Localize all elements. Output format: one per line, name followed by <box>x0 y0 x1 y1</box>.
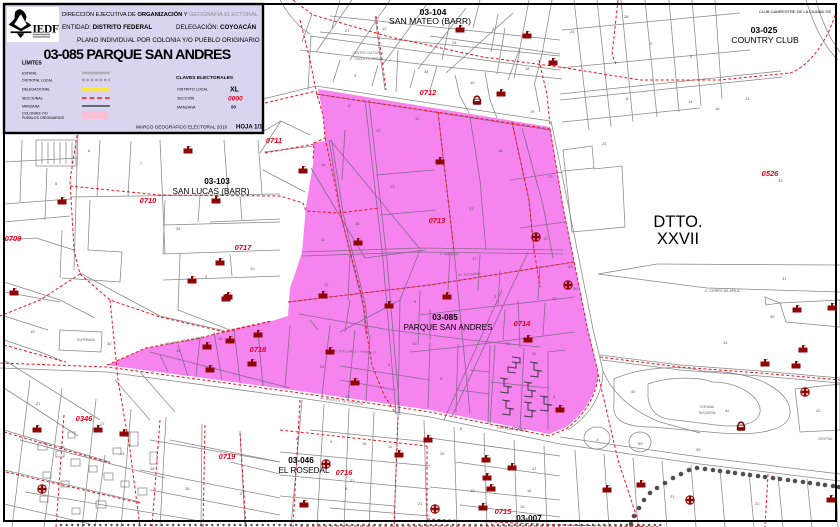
svg-text:03-085 PARQUE SAN ANDRES: 03-085 PARQUE SAN ANDRES <box>44 47 231 63</box>
svg-text:33: 33 <box>778 178 783 183</box>
svg-text:DISTRITO LOCAL: DISTRITO LOCAL <box>177 88 208 92</box>
svg-text:18: 18 <box>525 66 530 71</box>
svg-text:CLAVES ELECTORALES: CLAVES ELECTORALES <box>176 75 234 81</box>
svg-text:DISTRITAL LOCAL: DISTRITAL LOCAL <box>22 79 53 83</box>
svg-text:0715: 0715 <box>495 507 513 516</box>
svg-text:COUNTRY CLUB: COUNTRY CLUB <box>731 35 799 45</box>
svg-text:XL: XL <box>230 87 240 94</box>
svg-text:LÍMITES: LÍMITES <box>22 59 42 67</box>
svg-text:10: 10 <box>250 266 255 271</box>
svg-text:12: 12 <box>376 128 381 133</box>
svg-text:TAXQUEÑA: TAXQUEÑA <box>698 410 716 415</box>
svg-text:0346: 0346 <box>76 414 94 423</box>
svg-text:C. AMERICA: C. AMERICA <box>440 252 459 256</box>
svg-text:COLONIAS Y/O: COLONIAS Y/O <box>22 112 48 116</box>
svg-text:34: 34 <box>424 69 429 74</box>
svg-text:20: 20 <box>568 264 573 269</box>
svg-text:28: 28 <box>624 14 629 19</box>
svg-text:ESTATAL: ESTATAL <box>22 72 37 76</box>
svg-text:10: 10 <box>470 80 475 85</box>
svg-text:17: 17 <box>532 466 537 471</box>
svg-text:0710: 0710 <box>140 196 158 205</box>
svg-text:ENTIDAD: DISTRITO FEDERAL: ENTIDAD: DISTRITO FEDERAL <box>62 24 153 31</box>
svg-text:16: 16 <box>362 441 367 446</box>
svg-text:31: 31 <box>782 276 787 281</box>
svg-text:24: 24 <box>452 40 457 45</box>
svg-text:17: 17 <box>469 206 474 211</box>
svg-text:SORIANA: SORIANA <box>700 405 715 409</box>
svg-text:21: 21 <box>36 401 41 406</box>
svg-text:12: 12 <box>382 26 387 31</box>
svg-text:03-007: 03-007 <box>516 514 542 523</box>
svg-text:03-025: 03-025 <box>751 25 778 35</box>
svg-text:18: 18 <box>150 466 155 471</box>
svg-text:20: 20 <box>440 451 445 456</box>
svg-text:23: 23 <box>570 29 575 34</box>
svg-text:16: 16 <box>176 348 181 353</box>
svg-text:CENTRAL: CENTRAL <box>818 437 833 441</box>
svg-text:10: 10 <box>30 329 35 334</box>
svg-text:16: 16 <box>715 106 720 111</box>
svg-text:14: 14 <box>321 162 326 167</box>
svg-text:22: 22 <box>755 501 760 506</box>
svg-text:CLUB CAMPESTRE DE LA CIUDAD DE: CLUB CAMPESTRE DE LA CIUDAD DE <box>759 9 832 14</box>
svg-text:0716: 0716 <box>336 468 354 477</box>
svg-text:13: 13 <box>390 184 395 189</box>
svg-text:32: 32 <box>552 296 557 301</box>
svg-text:24: 24 <box>176 226 181 231</box>
svg-text:EL ROSEDAL: EL ROSEDAL <box>278 466 330 475</box>
svg-text:0718: 0718 <box>250 345 268 354</box>
svg-text:23: 23 <box>602 141 607 146</box>
svg-text:19: 19 <box>470 488 475 493</box>
svg-text:PARQUE SAN ANDRES: PARQUE SAN ANDRES <box>403 323 493 332</box>
svg-text:26: 26 <box>320 364 325 369</box>
svg-text:RODOLFO USIGLI: RODOLFO USIGLI <box>354 57 381 61</box>
svg-text:DTTO.: DTTO. <box>653 213 702 231</box>
svg-text:0526: 0526 <box>762 169 780 178</box>
svg-text:13: 13 <box>745 96 750 101</box>
svg-text:0717: 0717 <box>235 243 253 252</box>
svg-text:03-085: 03-085 <box>432 313 458 322</box>
svg-text:C. CERRO DE APILA: C. CERRO DE APILA <box>705 289 740 293</box>
svg-text:21: 21 <box>670 494 675 499</box>
svg-text:23: 23 <box>240 491 245 496</box>
svg-text:DELEGACIÓN: COYOACÁN: DELEGACIÓN: COYOACÁN <box>176 24 257 31</box>
svg-text:28: 28 <box>185 486 190 491</box>
svg-text:18: 18 <box>498 148 503 153</box>
svg-text:49: 49 <box>770 314 775 319</box>
svg-text:HOJA 1/1: HOJA 1/1 <box>236 125 263 131</box>
svg-text:MANZANA: MANZANA <box>22 105 40 109</box>
svg-text:MANZANA: MANZANA <box>177 106 196 110</box>
svg-text:03-046: 03-046 <box>288 456 314 465</box>
svg-text:DIRECCIÓN EJECUTIVA DE ORGANIZ: DIRECCIÓN EJECUTIVA DE ORGANIZACIÓN Y GE… <box>62 10 259 18</box>
svg-text:SECCIÓN: SECCIÓN <box>177 96 195 101</box>
svg-text:00: 00 <box>231 105 236 110</box>
svg-text:12: 12 <box>520 504 525 509</box>
svg-text:SAN MATEO (BARR): SAN MATEO (BARR) <box>389 16 471 26</box>
svg-text:21: 21 <box>418 501 423 506</box>
svg-text:16: 16 <box>527 488 532 493</box>
svg-text:19: 19 <box>530 109 535 114</box>
svg-text:0719: 0719 <box>219 452 237 461</box>
svg-text:24: 24 <box>506 341 511 346</box>
svg-text:0714: 0714 <box>514 319 532 328</box>
svg-text:35: 35 <box>696 447 701 452</box>
svg-text:0712: 0712 <box>420 88 438 97</box>
svg-text:13: 13 <box>345 394 350 399</box>
svg-text:42: 42 <box>725 408 730 413</box>
svg-text:21: 21 <box>350 478 355 483</box>
svg-text:14: 14 <box>688 99 693 104</box>
svg-text:PUEBLOS ORIGINARIOS: PUEBLOS ORIGINARIOS <box>22 116 65 120</box>
svg-text:22: 22 <box>816 408 821 413</box>
svg-text:46: 46 <box>60 444 65 449</box>
svg-text:30: 30 <box>107 341 112 346</box>
svg-text:17: 17 <box>472 256 477 261</box>
svg-text:MARCO GEOGRÁFICO ELECTORAL 20: MARCO GEOGRÁFICO ELECTORAL 2010 <box>136 124 228 130</box>
svg-text:30: 30 <box>573 286 578 291</box>
svg-text:16: 16 <box>355 221 360 226</box>
svg-text:XXVII: XXVII <box>657 230 699 248</box>
svg-text:IEDF: IEDF <box>33 24 60 36</box>
svg-text:10: 10 <box>412 341 417 346</box>
svg-text:SUPERAMA: SUPERAMA <box>77 338 96 342</box>
svg-text:28: 28 <box>218 336 223 341</box>
svg-text:03-103: 03-103 <box>204 177 230 186</box>
svg-text:0000: 0000 <box>228 96 243 103</box>
svg-text:CENTRO CULTURAL: CENTRO CULTURAL <box>353 51 384 55</box>
svg-text:DELEGACIONAL: DELEGACIONAL <box>22 88 50 92</box>
svg-text:23: 23 <box>548 174 553 179</box>
svg-text:40: 40 <box>631 389 636 394</box>
svg-text:0713: 0713 <box>429 216 447 225</box>
svg-text:SAN LUCAS (BARR): SAN LUCAS (BARR) <box>173 187 250 196</box>
svg-text:19: 19 <box>543 236 548 241</box>
svg-text:13: 13 <box>120 451 125 456</box>
svg-text:12: 12 <box>723 340 728 345</box>
svg-text:12: 12 <box>324 282 329 287</box>
svg-text:PLANO INDIVIDUAL POR COLONIA Y: PLANO INDIVIDUAL POR COLONIA Y/O PUEBLO … <box>77 37 260 44</box>
svg-text:27: 27 <box>345 28 350 33</box>
svg-text:SECCIONAL: SECCIONAL <box>22 97 43 101</box>
svg-text:59: 59 <box>638 441 643 446</box>
svg-text:0709: 0709 <box>5 234 23 243</box>
svg-text:0711: 0711 <box>266 136 282 145</box>
svg-text:17: 17 <box>100 421 105 426</box>
